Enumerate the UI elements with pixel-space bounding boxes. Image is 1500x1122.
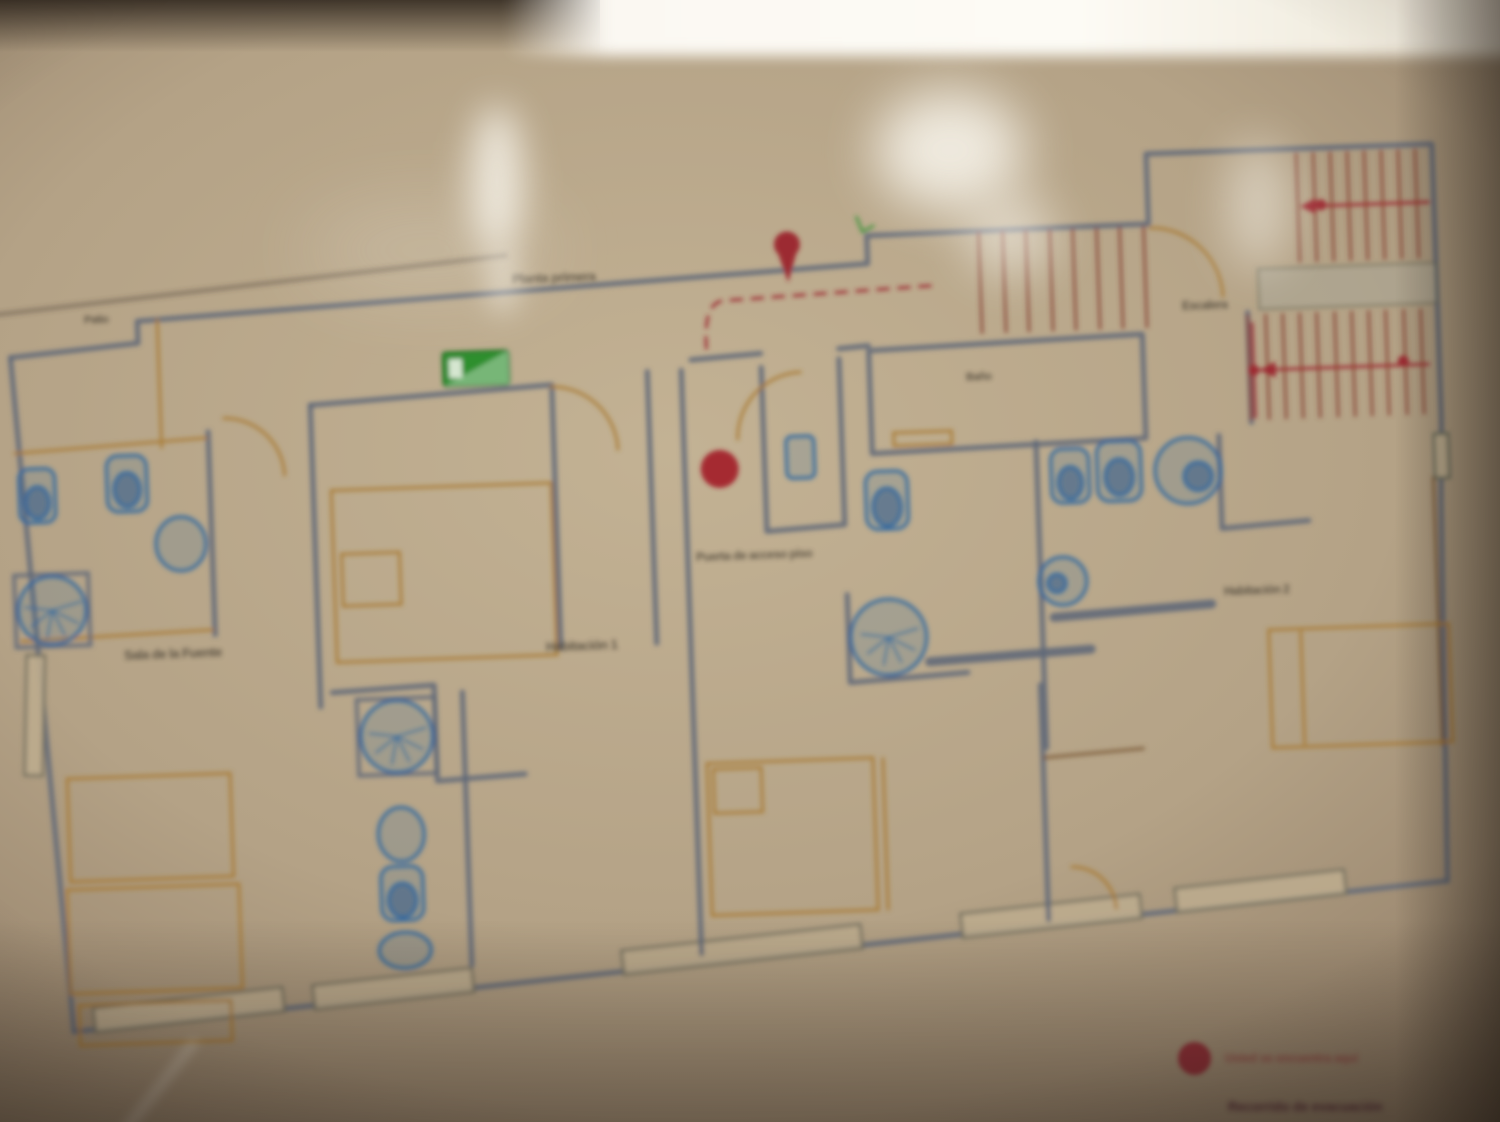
legend-item-label: Recorrido de evacuación: [1228, 1099, 1383, 1114]
green-route-tick: [856, 215, 875, 232]
legend-red-dot-symbol: [1178, 1042, 1211, 1075]
floor-plan-drawing: [0, 0, 1500, 1122]
staircase-top-right: [1242, 148, 1441, 420]
furniture: [7, 218, 1461, 1047]
radiators: [21, 610, 1350, 1035]
legend-item-label: Usted se encuentra aquí: [1225, 1053, 1358, 1065]
location-pin-marker: [773, 231, 801, 283]
legend-item-evacuation-route: Recorrido de evacuación: [1228, 1099, 1500, 1114]
exit-sign-door-glyph: [449, 359, 463, 378]
photo-of-evacuation-floor-plan: Planta primeraPatioSala de la FuenteHabi…: [0, 0, 1500, 1122]
bathroom-fixtures: [10, 418, 1237, 982]
right-wall-door: [1434, 434, 1450, 478]
route-dot-marker: [1315, 199, 1326, 210]
glass-fold-shadow: [0, 255, 509, 316]
staircase-top-middle: [979, 226, 1147, 334]
legend-item-you-are-here: Usted se encuentra aquí: [1178, 1042, 1500, 1075]
emergency-exit-sign: [442, 350, 509, 386]
you-are-here-marker: [700, 449, 739, 488]
legend: Usted se encuentra aquí Recorrido de eva…: [1178, 1042, 1500, 1122]
